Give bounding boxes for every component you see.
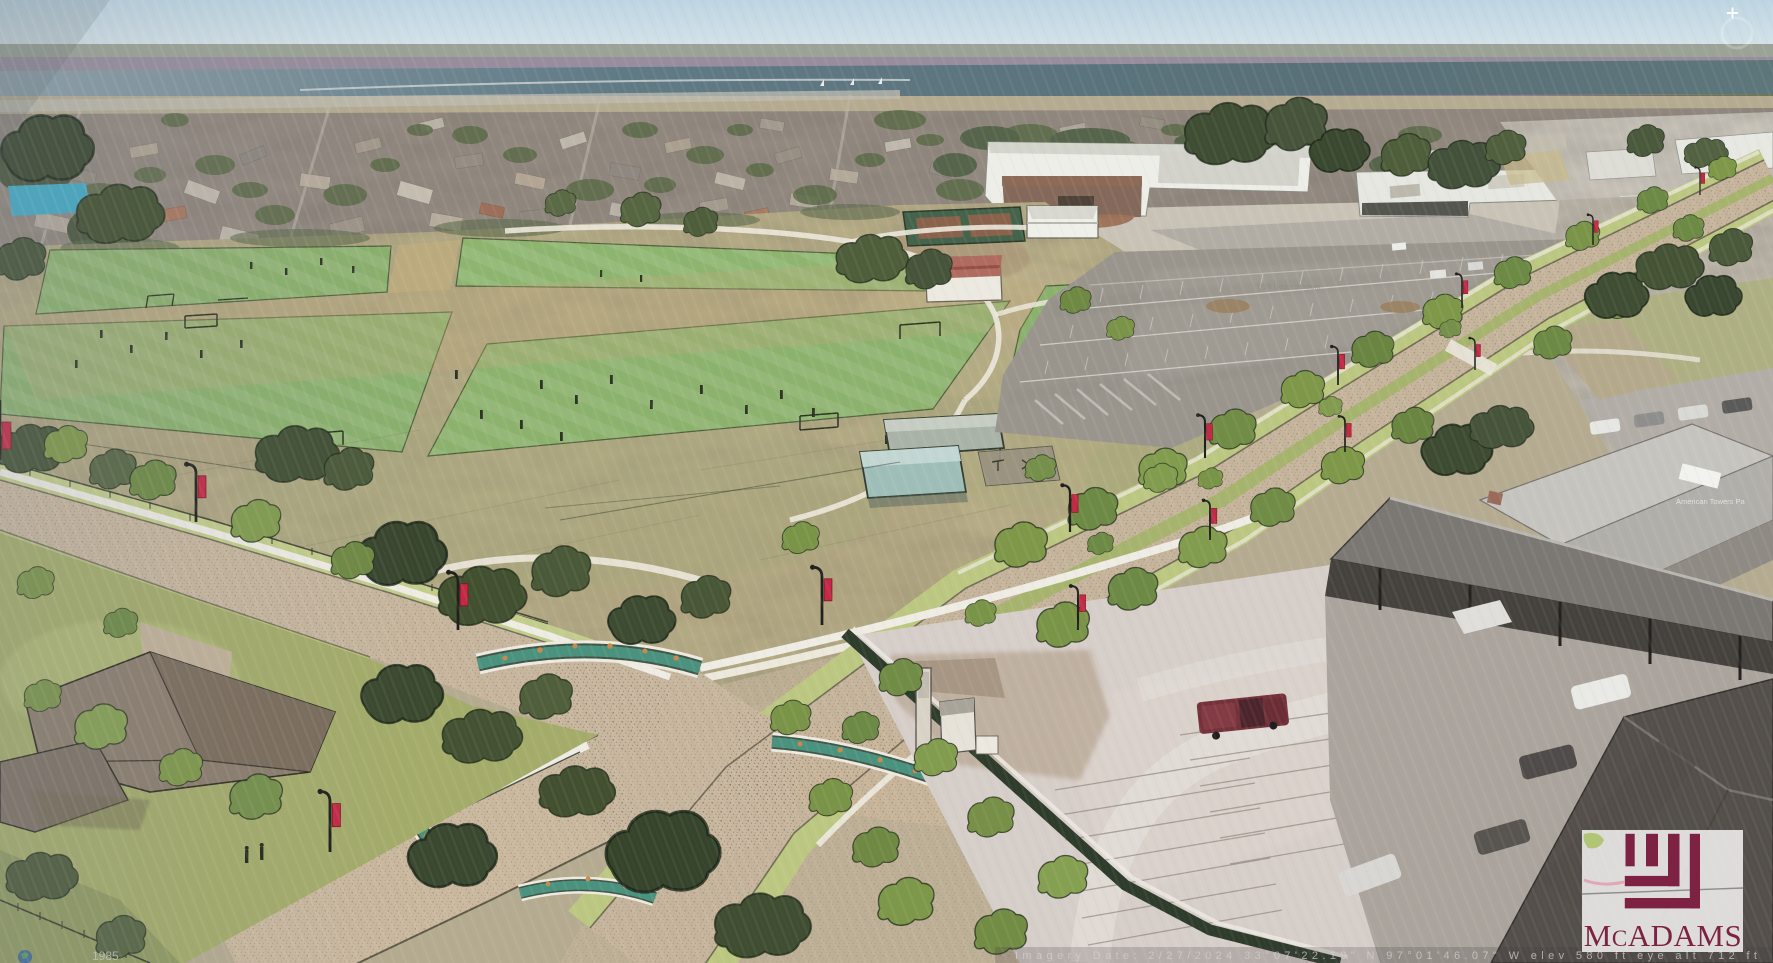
svg-text:MCADAMS: MCADAMS	[1584, 918, 1742, 953]
